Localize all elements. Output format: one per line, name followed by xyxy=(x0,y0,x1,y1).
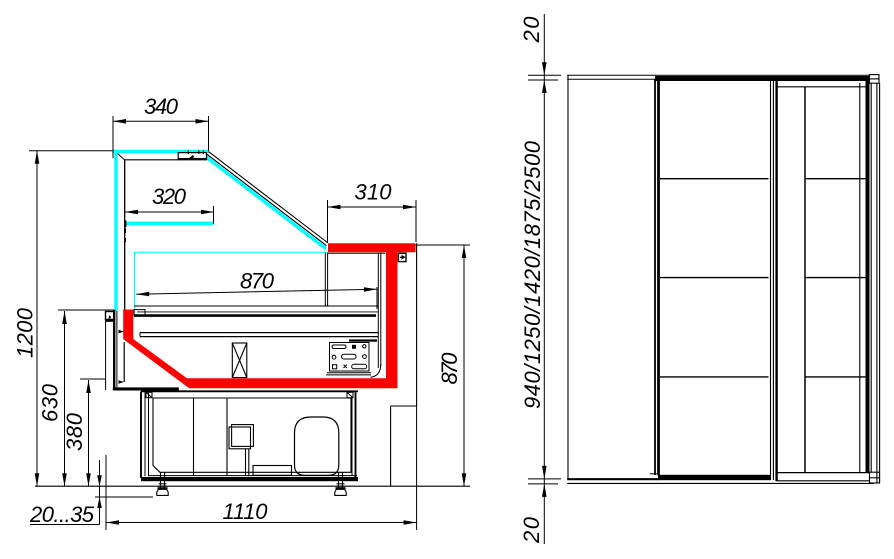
svg-text:20...35: 20...35 xyxy=(29,502,95,527)
svg-text:20: 20 xyxy=(519,16,544,44)
svg-text:20: 20 xyxy=(519,516,544,544)
svg-text:340: 340 xyxy=(144,94,179,119)
svg-text:1110: 1110 xyxy=(223,499,269,524)
svg-text:870: 870 xyxy=(437,352,462,385)
svg-text:1200: 1200 xyxy=(13,307,38,358)
svg-text:870: 870 xyxy=(240,269,275,294)
svg-text:320: 320 xyxy=(152,184,187,209)
svg-text:310: 310 xyxy=(355,180,393,205)
svg-text:380: 380 xyxy=(62,412,87,451)
svg-text:630: 630 xyxy=(38,383,63,422)
svg-text:940/1250/1420/1875/2500: 940/1250/1420/1875/2500 xyxy=(520,140,545,409)
